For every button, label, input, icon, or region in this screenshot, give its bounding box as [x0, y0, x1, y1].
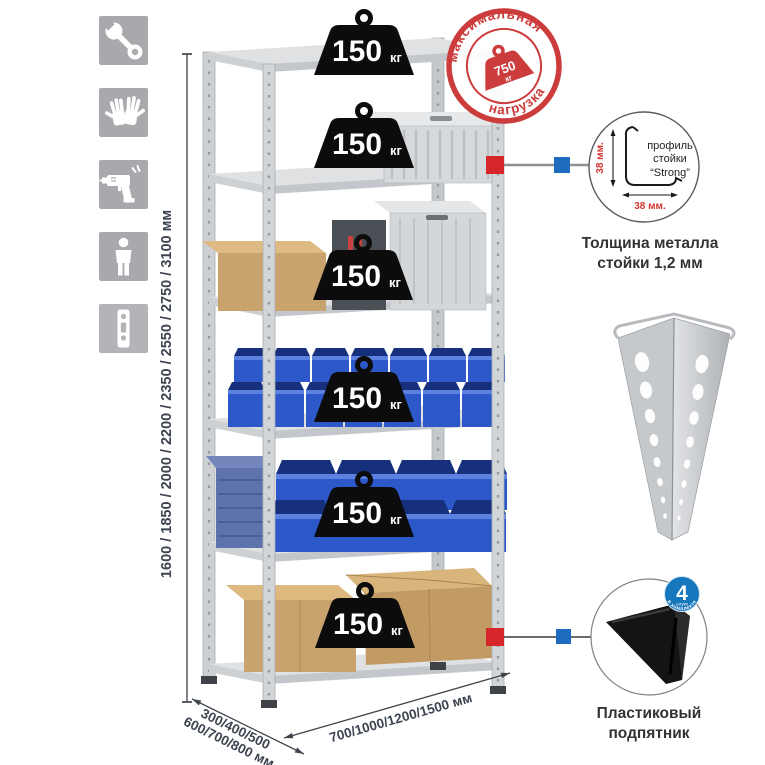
drill-icon [99, 160, 148, 209]
wrench-icon [99, 16, 148, 65]
svg-text:150: 150 [333, 608, 383, 641]
gloves-icon [99, 88, 148, 137]
assembly-icons-column [99, 16, 148, 353]
width-dimension-label: 700/1000/1200/1500 мм [328, 690, 474, 745]
perforated-post-icon [99, 304, 148, 353]
svg-text:150: 150 [331, 260, 381, 293]
red-marker [486, 156, 504, 174]
svg-text:кг: кг [390, 397, 403, 412]
width-dimension: 700/1000/1200/1500 мм [272, 658, 522, 753]
svg-text:150: 150 [332, 128, 382, 161]
svg-text:кг: кг [390, 512, 403, 527]
svg-text:150: 150 [332, 35, 382, 68]
svg-text:150: 150 [332, 497, 382, 530]
blue-marker [556, 629, 571, 644]
profile-label-1: профиль [647, 140, 693, 152]
height-dimension-label: 1600 / 1850 / 2000 / 2200 / 2350 / 2550 … [159, 210, 175, 578]
profile-dim-vertical: 38 мм. [595, 142, 606, 174]
profile-label-2: стойки [653, 153, 687, 165]
quantity-badge: 4 штуки в комплекте [665, 577, 700, 613]
profile-detail-circle: 38 мм. 38 мм. профиль стойки “Strong” [586, 109, 704, 227]
foot-caption: Пластиковый подпятник [578, 704, 720, 744]
plastic-foot-circle: 4 штуки в комплекте [586, 576, 712, 702]
profile-caption: Толщина металла стойки 1,2 мм [575, 234, 725, 274]
max-load-stamp: максимальная нагрузка 750 кг [438, 4, 570, 130]
foot-callout-connector [484, 624, 596, 650]
svg-text:кг: кг [390, 50, 403, 65]
svg-text:кг: кг [391, 623, 404, 638]
person-icon [99, 232, 148, 281]
svg-text:150: 150 [332, 382, 382, 415]
load-badge: 150 кг [314, 12, 414, 76]
svg-text:кг: кг [390, 143, 403, 158]
profile-callout-connector [486, 152, 596, 178]
red-marker [486, 628, 504, 646]
profile-dim-horizontal: 38 мм. [634, 201, 666, 212]
profile-label-3: “Strong” [650, 167, 690, 179]
svg-text:кг: кг [389, 275, 402, 290]
blue-marker [554, 157, 570, 173]
angle-post-image [596, 300, 746, 545]
